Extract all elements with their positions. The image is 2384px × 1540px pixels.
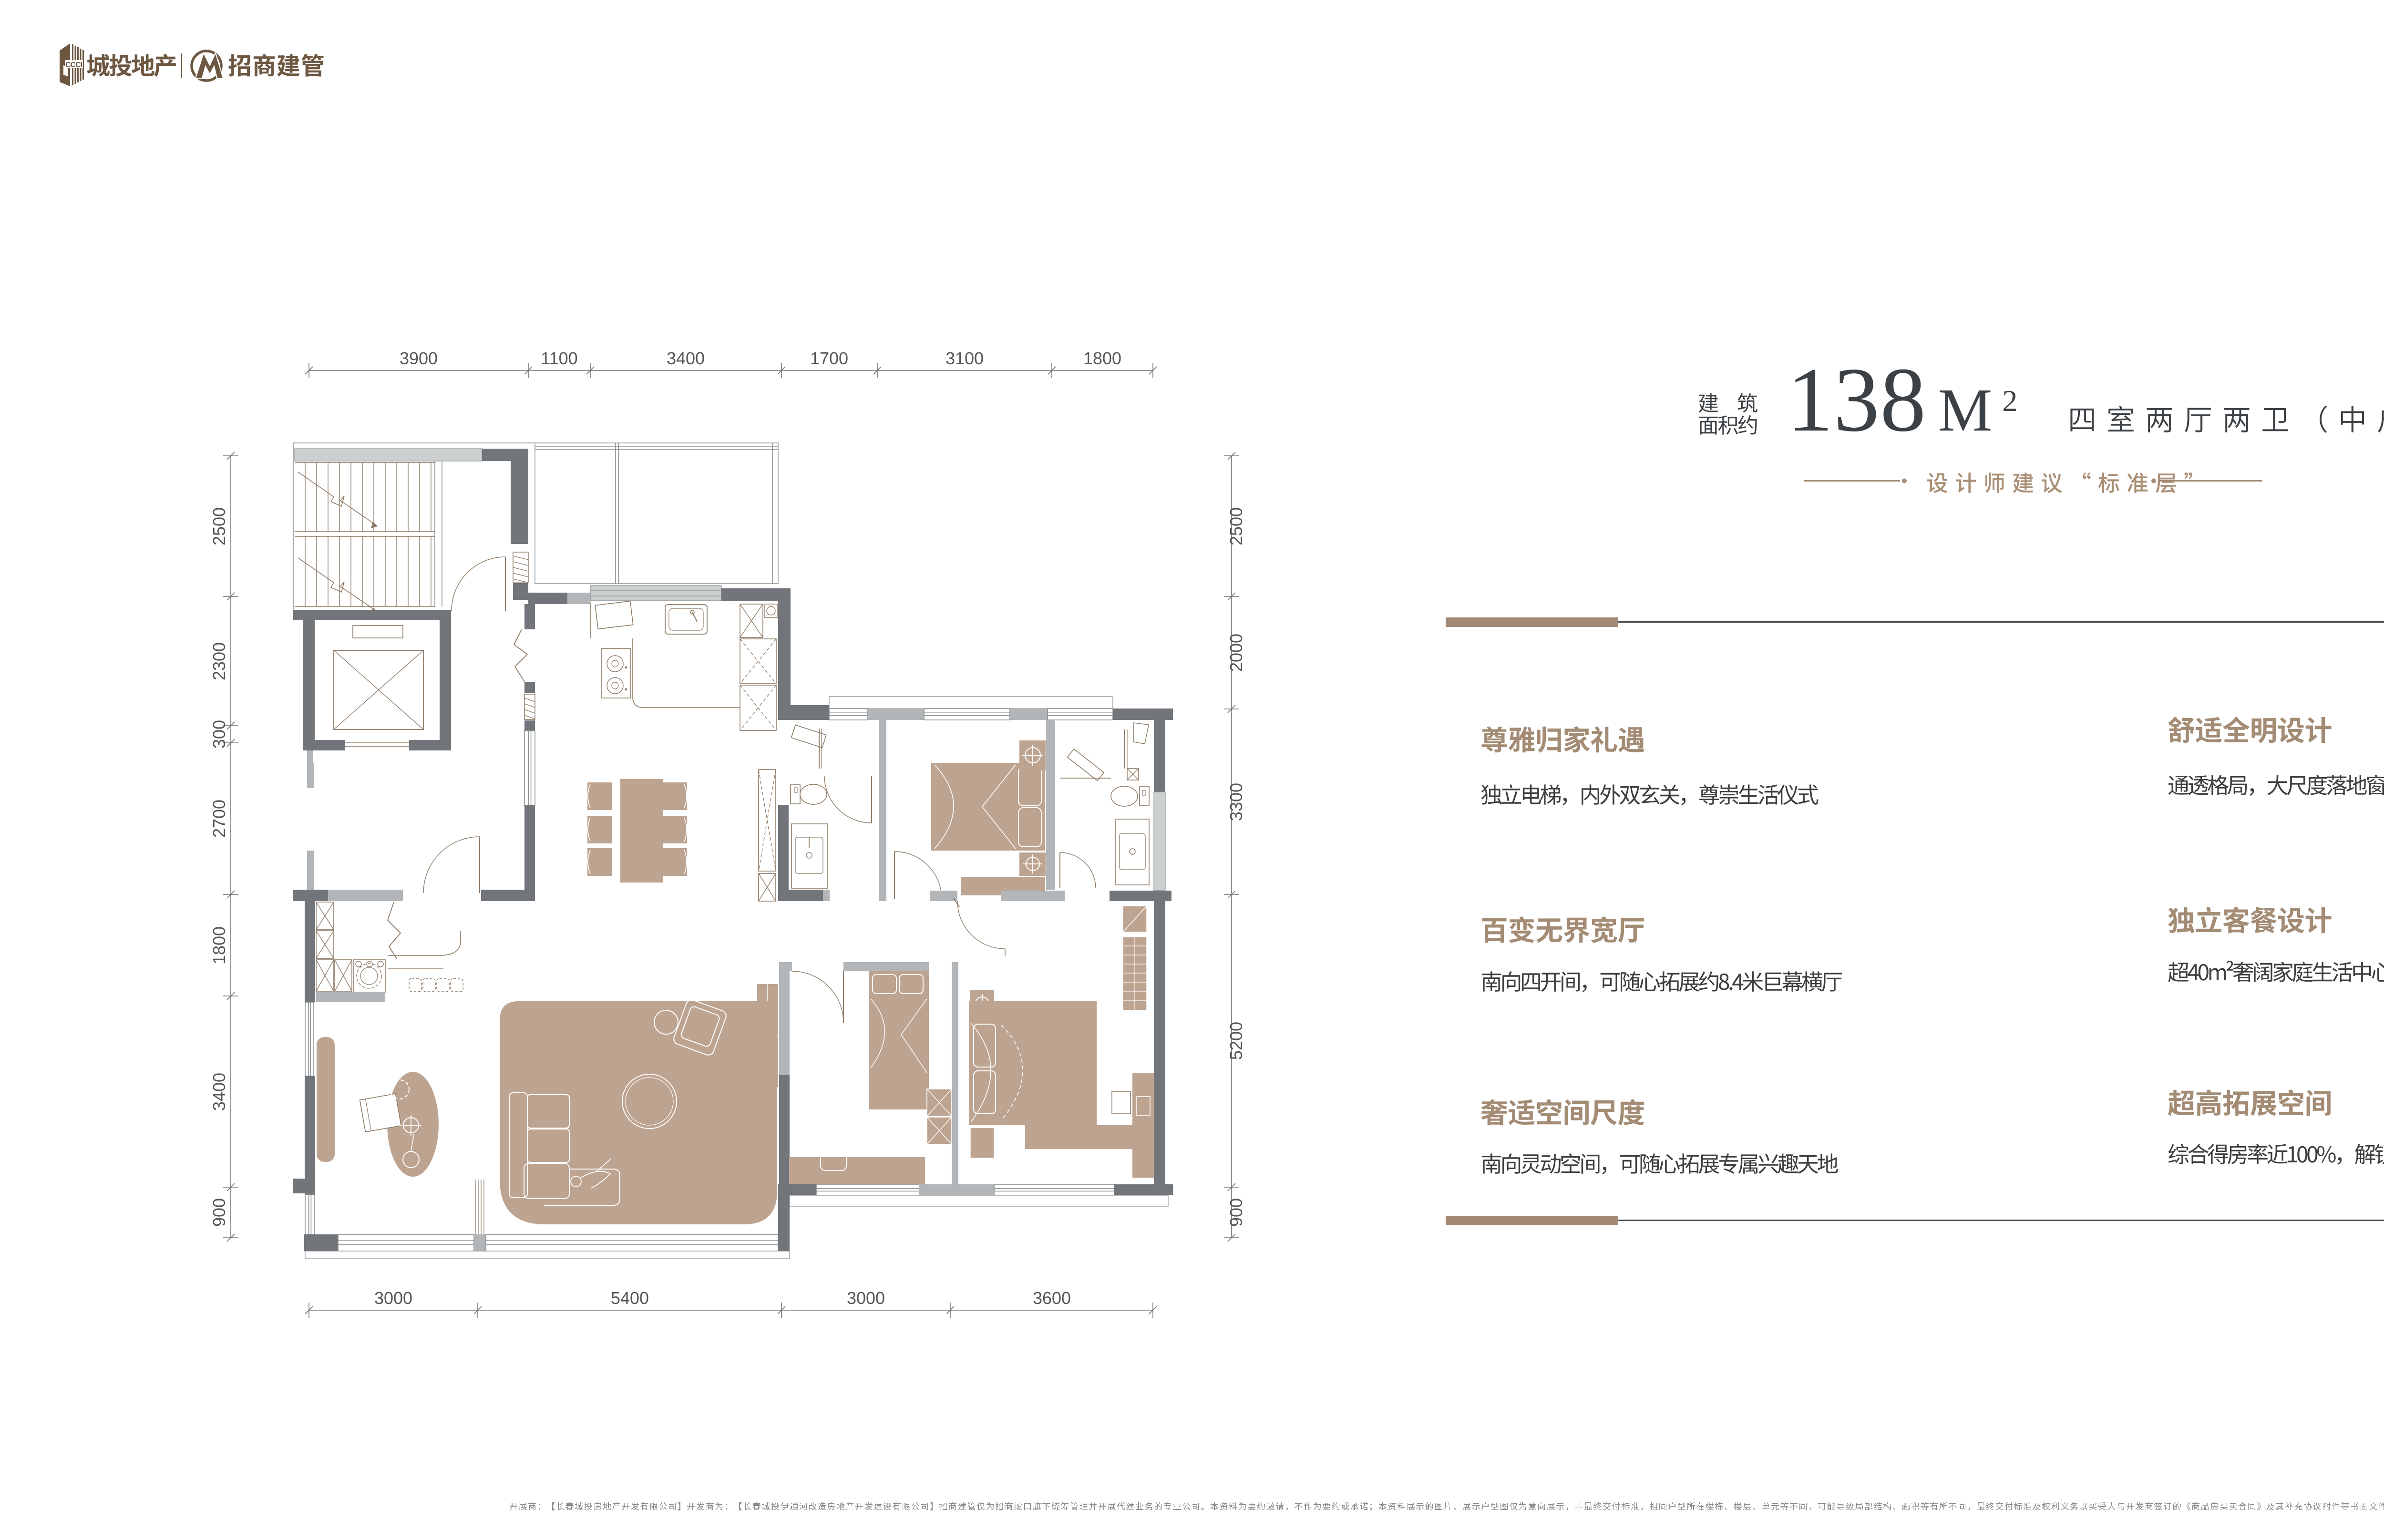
svg-text:300: 300 (209, 720, 229, 749)
svg-text:5200: 5200 (1226, 1022, 1246, 1060)
svg-text:5400: 5400 (611, 1288, 649, 1308)
svg-text:3900: 3900 (400, 349, 438, 368)
svg-text:2500: 2500 (209, 507, 229, 545)
svg-text:3300: 3300 (1226, 783, 1246, 821)
svg-text:3100: 3100 (945, 349, 984, 368)
svg-text:3400: 3400 (667, 349, 705, 368)
svg-text:138M2: 138M2 (1787, 349, 2018, 451)
svg-text:1100: 1100 (541, 349, 577, 368)
svg-text:1800: 1800 (1083, 349, 1121, 368)
svg-text:2000: 2000 (1226, 634, 1246, 672)
svg-text:3000: 3000 (374, 1288, 412, 1308)
svg-text:2300: 2300 (209, 642, 229, 680)
svg-text:2700: 2700 (209, 800, 229, 838)
svg-text:1800: 1800 (209, 926, 229, 965)
svg-text:CCCI: CCCI (65, 61, 82, 69)
svg-text:1700: 1700 (810, 349, 848, 368)
svg-text:900: 900 (209, 1198, 229, 1227)
svg-text:3600: 3600 (1033, 1288, 1071, 1308)
svg-text:900: 900 (1226, 1198, 1246, 1227)
svg-text:3000: 3000 (847, 1288, 885, 1308)
svg-text:2500: 2500 (1226, 507, 1246, 545)
svg-text:3400: 3400 (209, 1073, 229, 1111)
